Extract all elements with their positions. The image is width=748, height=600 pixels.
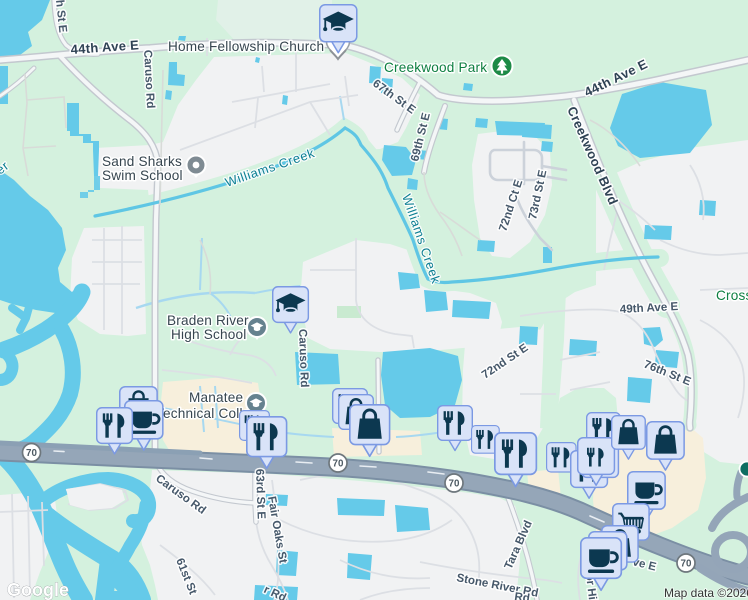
svg-text:Google: Google <box>7 580 69 600</box>
svg-text:Crossi: Crossi <box>716 288 748 303</box>
svg-text:70: 70 <box>333 459 344 470</box>
svg-text:70: 70 <box>449 479 460 490</box>
svg-text:Sand Sharks: Sand Sharks <box>102 154 182 169</box>
svg-text:Braden River: Braden River <box>167 313 249 328</box>
svg-text:63rd St E: 63rd St E <box>253 469 268 520</box>
svg-text:Manatee: Manatee <box>189 390 243 405</box>
svg-text:Creekwood Park: Creekwood Park <box>384 60 487 75</box>
svg-text:70: 70 <box>26 448 37 459</box>
svg-text:Rd: Rd <box>514 590 531 600</box>
svg-text:70: 70 <box>681 559 692 570</box>
svg-text:Swim School: Swim School <box>102 168 183 183</box>
svg-text:Map data ©2026: Map data ©2026 <box>664 586 748 600</box>
svg-text:High School: High School <box>171 327 247 342</box>
svg-text:Caruso Rd: Caruso Rd <box>296 329 311 388</box>
svg-text:Home Fellowship Church: Home Fellowship Church <box>168 39 324 54</box>
